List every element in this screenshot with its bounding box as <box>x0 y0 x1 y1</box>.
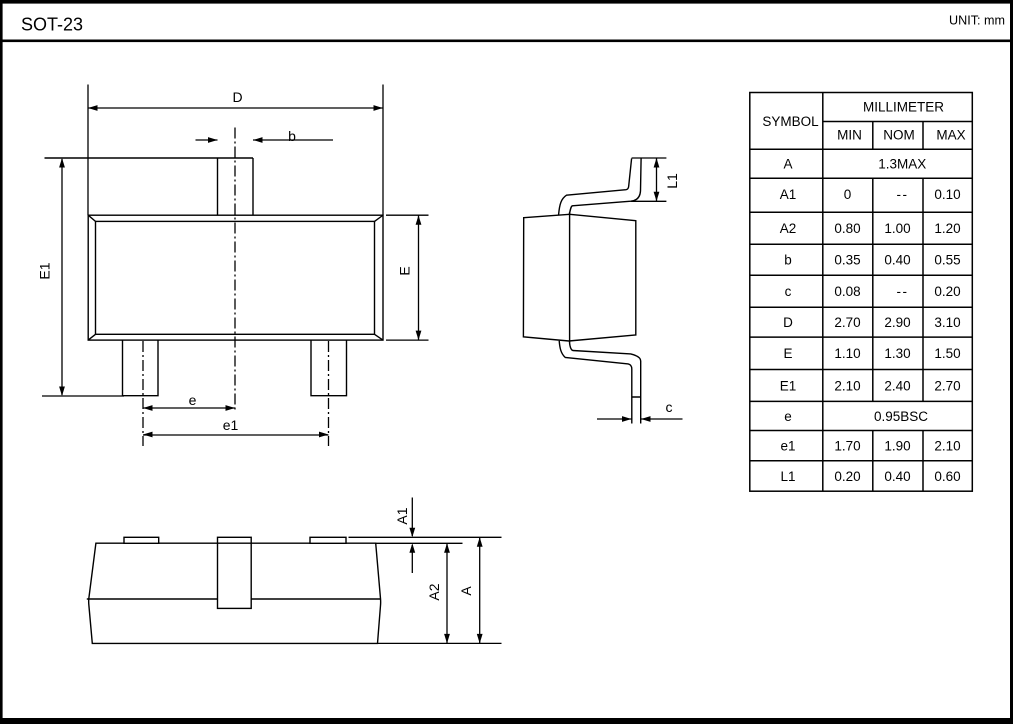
svg-text:A1: A1 <box>780 187 797 202</box>
svg-text:e: e <box>189 392 197 408</box>
svg-text:0.20: 0.20 <box>834 469 860 484</box>
svg-text:SYMBOL: SYMBOL <box>762 114 819 129</box>
svg-text:UNIT: mm: UNIT: mm <box>949 14 1005 28</box>
svg-text:1.3MAX: 1.3MAX <box>878 157 926 172</box>
svg-text:2.10: 2.10 <box>934 439 960 454</box>
svg-text:MIN: MIN <box>837 128 862 143</box>
svg-text:1.90: 1.90 <box>884 439 910 454</box>
svg-text:E: E <box>783 346 792 361</box>
svg-text:L1: L1 <box>780 469 795 484</box>
svg-text:E1: E1 <box>780 378 797 393</box>
svg-text:2.70: 2.70 <box>934 378 960 393</box>
svg-text:NOM: NOM <box>883 128 915 143</box>
svg-text:c: c <box>785 284 792 299</box>
svg-text:D: D <box>232 89 242 105</box>
svg-text:E1: E1 <box>37 262 53 279</box>
svg-text:0.20: 0.20 <box>934 284 960 299</box>
svg-text:e1: e1 <box>223 417 239 433</box>
svg-text:1.10: 1.10 <box>834 346 860 361</box>
svg-text:1.20: 1.20 <box>934 221 960 236</box>
svg-text:0.55: 0.55 <box>934 253 960 268</box>
svg-text:D: D <box>783 315 793 330</box>
svg-text:--: -- <box>897 284 909 299</box>
svg-text:--: -- <box>897 187 909 202</box>
svg-text:1.00: 1.00 <box>884 221 910 236</box>
svg-text:A2: A2 <box>426 583 442 600</box>
svg-text:A1: A1 <box>394 507 410 524</box>
svg-text:b: b <box>288 128 296 144</box>
svg-text:0.40: 0.40 <box>884 253 910 268</box>
svg-text:e1: e1 <box>780 439 795 454</box>
svg-text:MILLIMETER: MILLIMETER <box>863 100 944 115</box>
svg-text:c: c <box>666 399 673 415</box>
svg-text:b: b <box>784 253 792 268</box>
svg-text:E: E <box>397 266 413 275</box>
svg-text:0.95BSC: 0.95BSC <box>874 409 928 424</box>
svg-text:1.50: 1.50 <box>934 346 960 361</box>
svg-text:0.08: 0.08 <box>834 284 860 299</box>
svg-text:1.30: 1.30 <box>884 346 910 361</box>
svg-text:0.35: 0.35 <box>834 253 860 268</box>
svg-text:2.40: 2.40 <box>884 378 910 393</box>
svg-text:2.10: 2.10 <box>834 378 860 393</box>
svg-text:0.60: 0.60 <box>934 469 960 484</box>
svg-text:2.90: 2.90 <box>884 315 910 330</box>
svg-text:0.10: 0.10 <box>934 187 960 202</box>
svg-text:2.70: 2.70 <box>834 315 860 330</box>
svg-text:A2: A2 <box>780 221 797 236</box>
svg-text:0.80: 0.80 <box>834 221 860 236</box>
svg-text:3.10: 3.10 <box>934 315 960 330</box>
svg-text:A: A <box>783 157 792 172</box>
svg-text:1.70: 1.70 <box>834 439 860 454</box>
svg-text:MAX: MAX <box>936 128 965 143</box>
svg-text:L1: L1 <box>664 173 680 189</box>
svg-text:0: 0 <box>844 187 852 202</box>
svg-text:e: e <box>784 409 792 424</box>
svg-text:A: A <box>458 586 474 596</box>
svg-text:SOT-23: SOT-23 <box>21 15 83 35</box>
svg-text:0.40: 0.40 <box>884 469 910 484</box>
